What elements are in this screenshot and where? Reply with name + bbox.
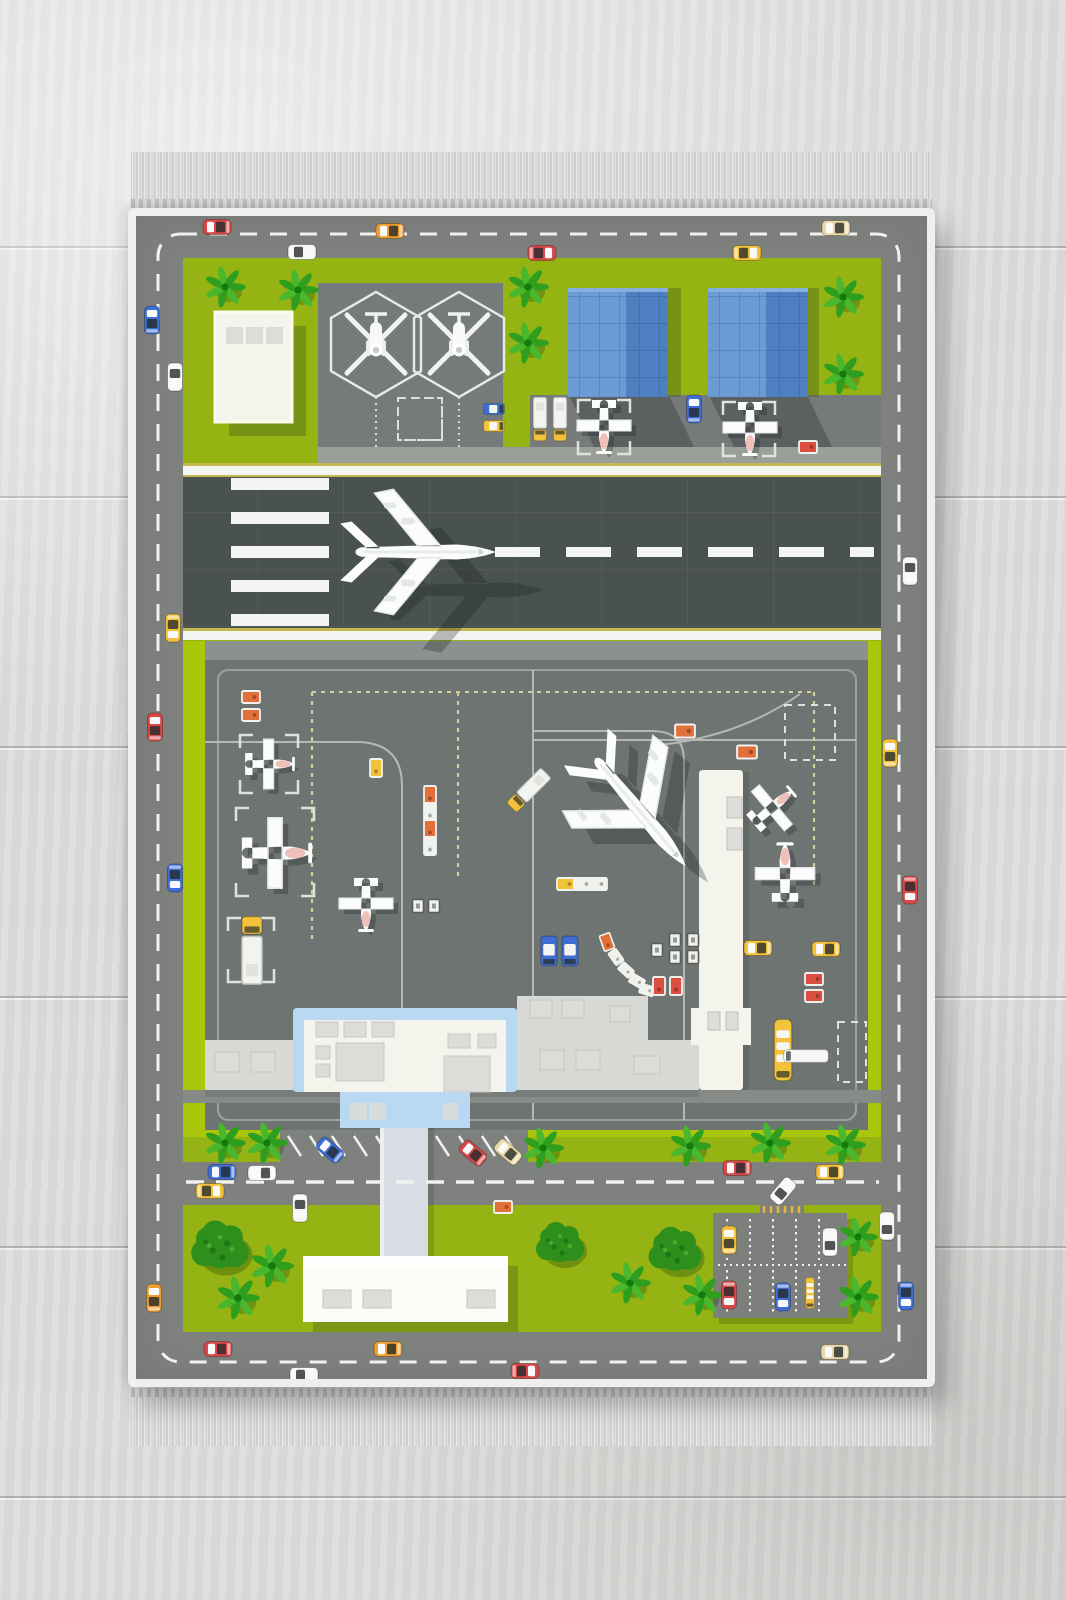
rug xyxy=(128,208,935,1387)
rug-fringe-bottom xyxy=(131,1388,932,1446)
rug-woven-edge xyxy=(131,1388,932,1397)
rug-woven-edge xyxy=(131,199,932,208)
rug-fringe-top xyxy=(131,152,932,208)
product-photo-airport-rug xyxy=(0,0,1066,1600)
